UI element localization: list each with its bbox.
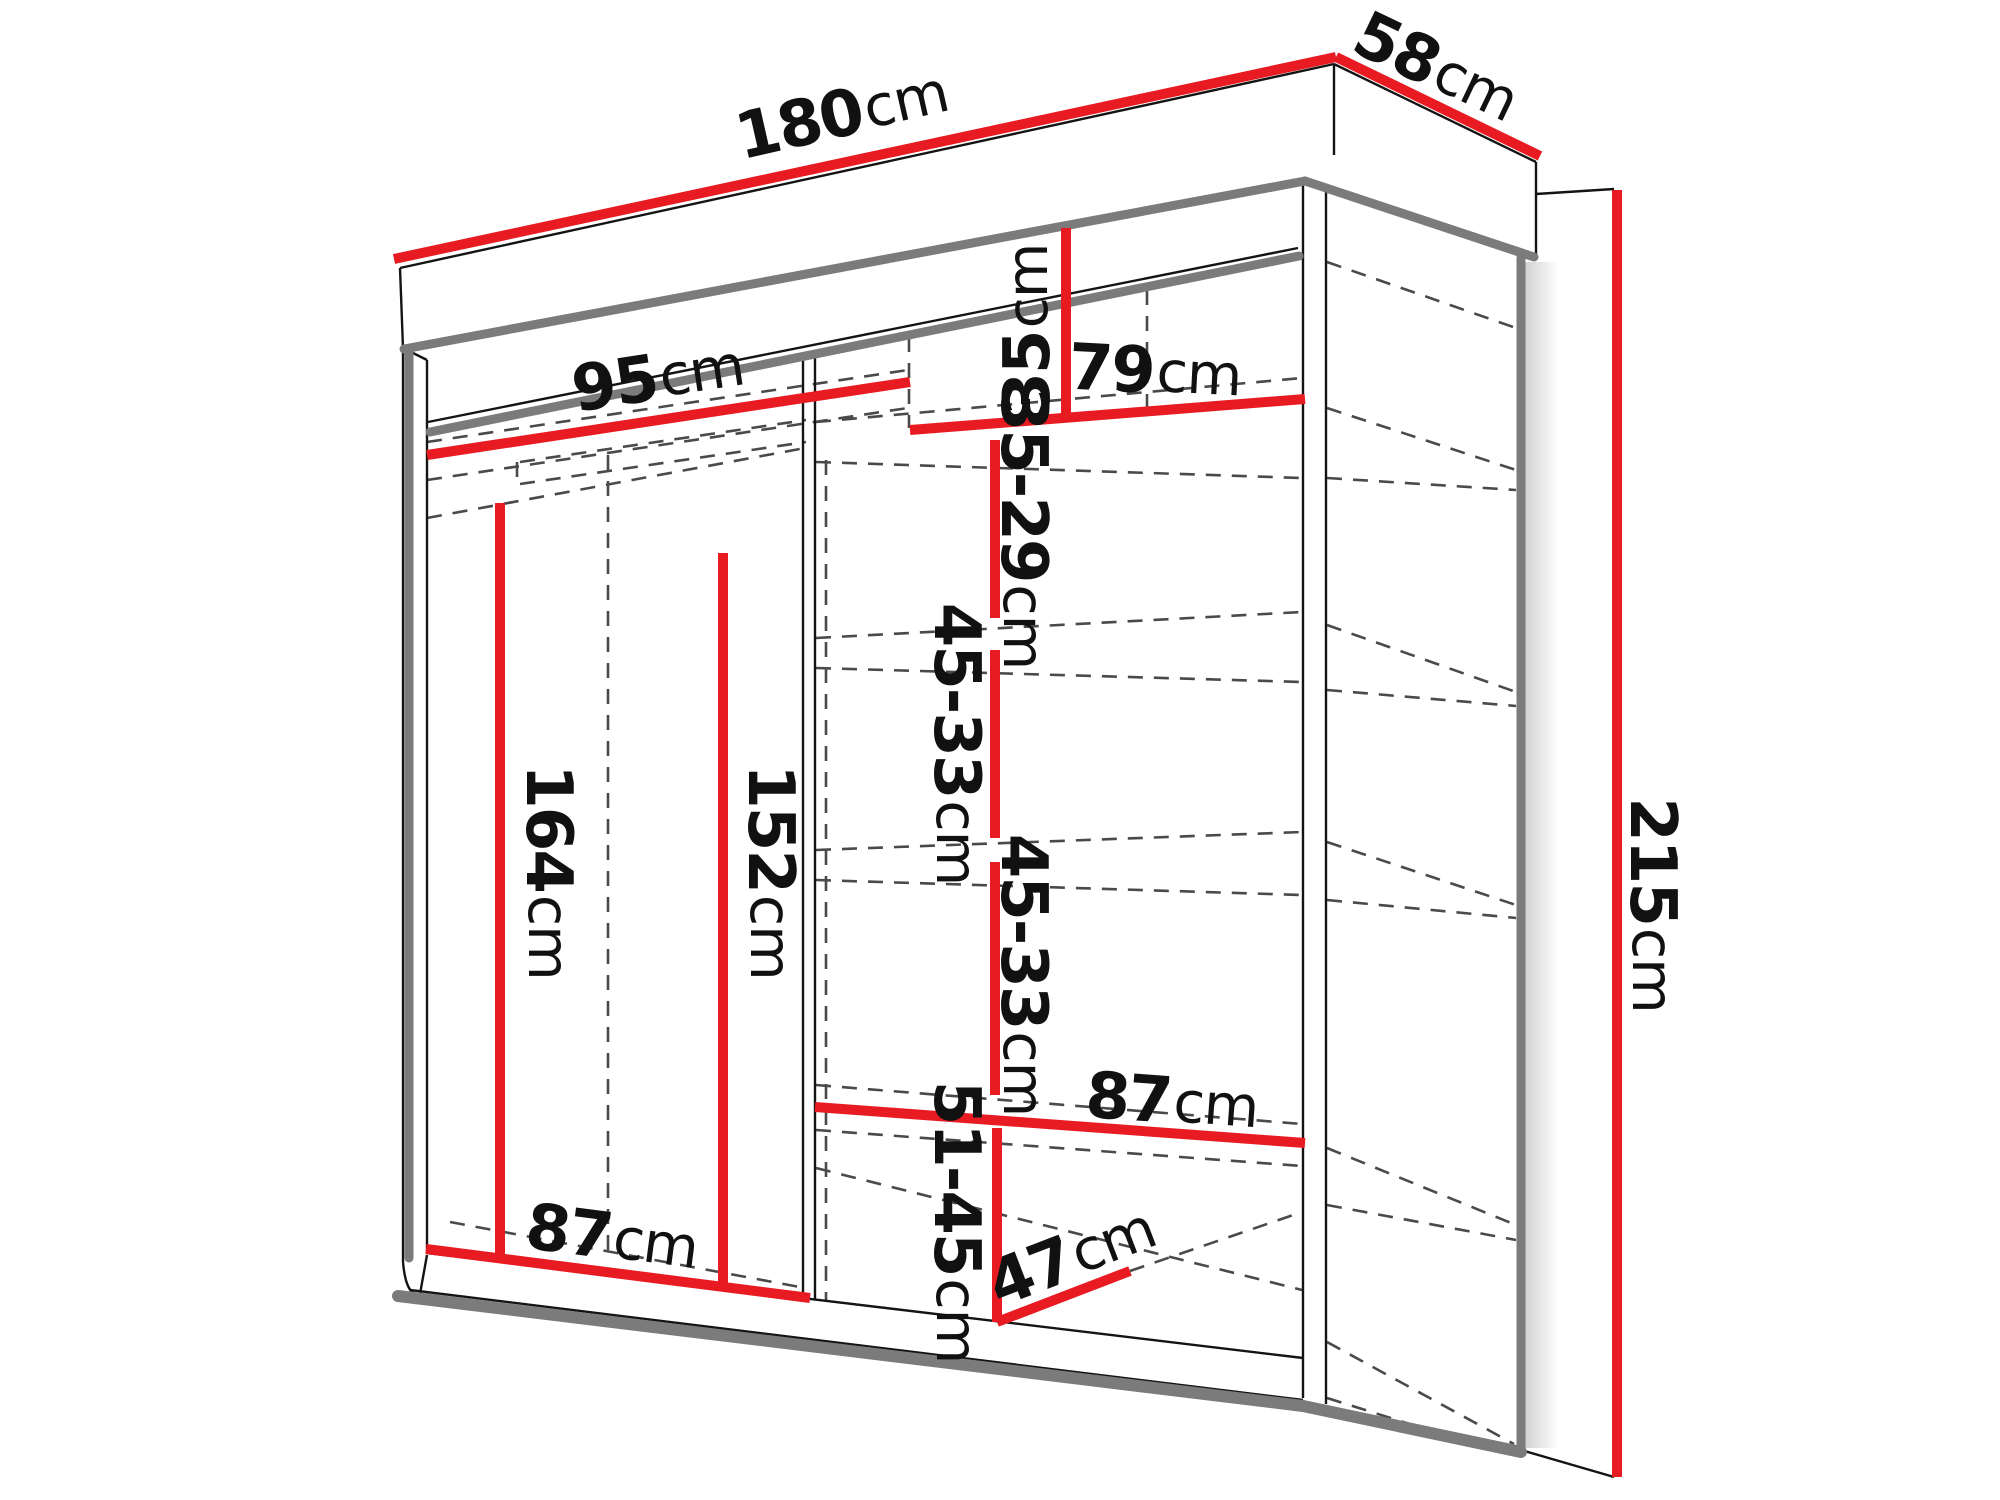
side-panel-shadow [1525, 262, 1559, 1448]
dimension-label-gap_51_45: 51-45cm [919, 1081, 993, 1364]
dimension-label-left_height_152: 152cm [733, 764, 807, 979]
dimension-label-gap_35_29: 35-29cm [986, 387, 1060, 670]
dimension-label-gap_45_33_a: 45-33cm [919, 603, 993, 886]
wardrobe-diagram-svg: 180cm58cm215cm95cm35cm79cm35-29cm45-33cm… [0, 0, 2000, 1500]
dimension-label-height_total: 215cm [1615, 797, 1689, 1012]
dimension-label-gap_45_33_b: 45-33cm [986, 834, 1060, 1117]
wardrobe-dimension-diagram: 180cm58cm215cm95cm35cm79cm35-29cm45-33cm… [0, 0, 2000, 1500]
dimension-label-left_height_164: 164cm [511, 764, 585, 979]
